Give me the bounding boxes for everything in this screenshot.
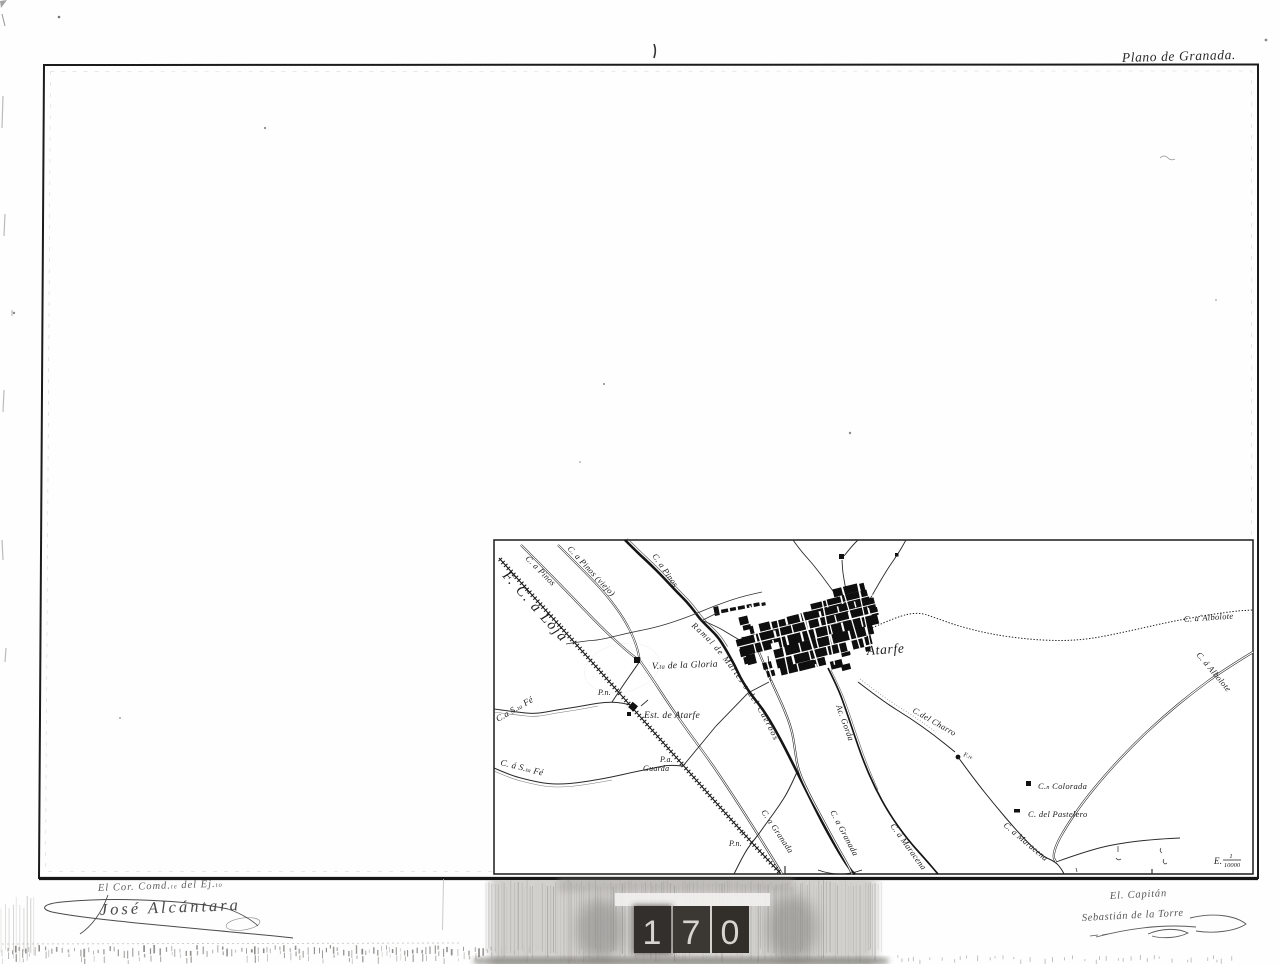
svg-text:1: 1 [1229,853,1232,860]
svg-text:Guarda: Guarda [643,764,669,773]
svg-text:Est. de Atarfe: Est. de Atarfe [643,710,700,721]
svg-text:10000: 10000 [1224,862,1241,869]
svg-text:C.n Colorada: C.n Colorada [1038,781,1087,791]
svg-text:Plano de Granada.: Plano de Granada. [1121,47,1236,65]
svg-text:P.n.: P.n. [728,839,742,848]
svg-text:E.: E. [1213,856,1222,866]
svg-text:P.n.: P.n. [597,688,611,697]
svg-text:7: 7 [682,914,701,952]
svg-text:C. del Pastelero: C. del Pastelero [1028,809,1088,819]
svg-text:0: 0 [721,914,740,952]
svg-text:P.a.: P.a. [659,755,673,764]
svg-text:1: 1 [643,914,662,952]
svg-text:Atarfe: Atarfe [865,640,905,658]
